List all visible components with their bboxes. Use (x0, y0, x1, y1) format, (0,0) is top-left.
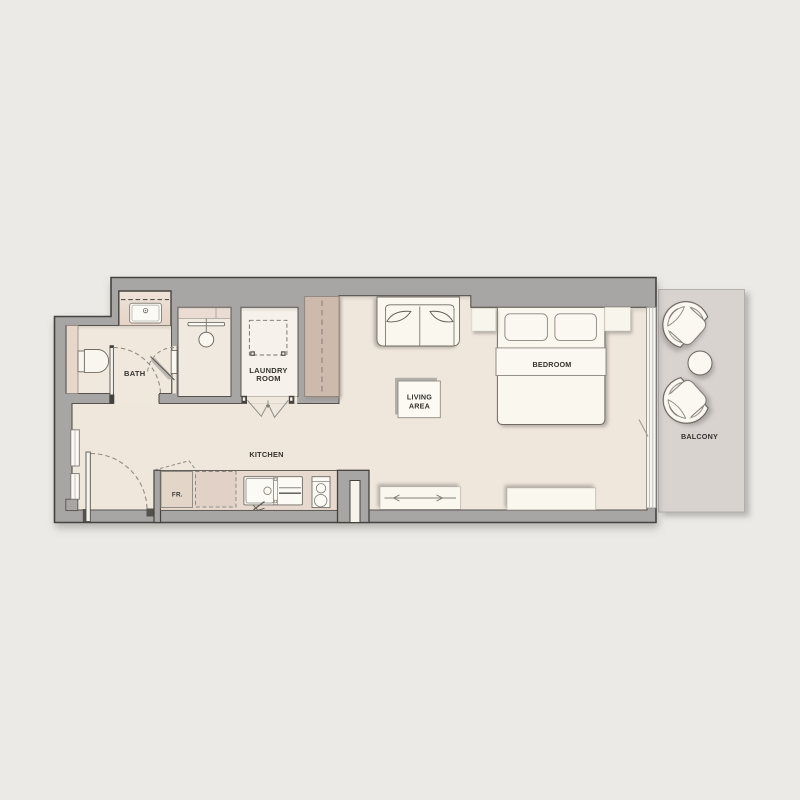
svg-text:FR.: FR. (172, 492, 183, 499)
svg-text:AREA: AREA (409, 402, 430, 411)
svg-text:BEDROOM: BEDROOM (533, 360, 572, 369)
svg-text:BALCONY: BALCONY (681, 432, 718, 441)
svg-text:LIVING: LIVING (407, 393, 432, 402)
svg-text:ROOM: ROOM (256, 374, 281, 383)
svg-text:BATH: BATH (124, 369, 145, 378)
svg-text:KITCHEN: KITCHEN (249, 450, 283, 459)
